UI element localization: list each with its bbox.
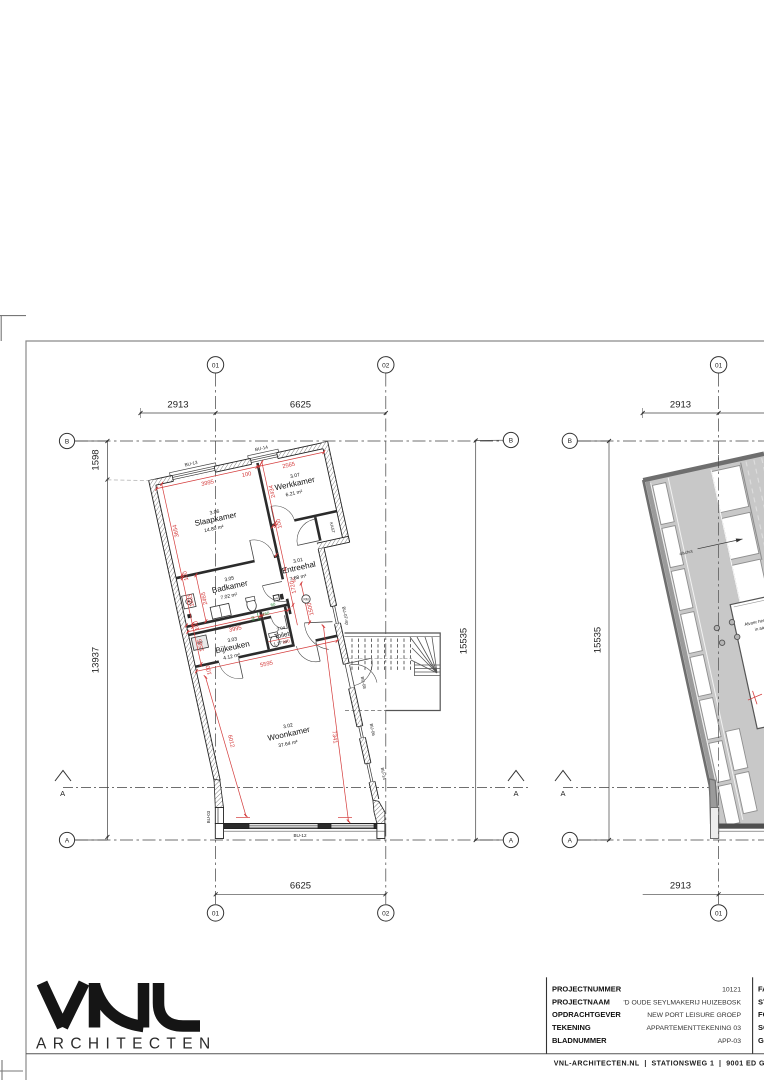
svg-text:2913: 2913 bbox=[167, 400, 188, 411]
svg-text:01: 01 bbox=[715, 362, 723, 369]
svg-text:ARCHITECTEN: ARCHITECTEN bbox=[36, 1036, 217, 1053]
svg-text:SCHAAL: SCHAAL bbox=[758, 1023, 764, 1032]
svg-text:2913: 2913 bbox=[670, 400, 691, 411]
svg-text:01: 01 bbox=[212, 362, 220, 369]
svg-text:GETEKEND: GETEKEND bbox=[758, 1036, 764, 1045]
svg-text:A: A bbox=[568, 837, 573, 844]
svg-text:TEKENING: TEKENING bbox=[552, 1023, 591, 1032]
svg-text:FORMAAT: FORMAAT bbox=[758, 1010, 764, 1019]
svg-text:A: A bbox=[65, 837, 70, 844]
svg-text:10121: 10121 bbox=[722, 987, 741, 994]
svg-text:02: 02 bbox=[382, 910, 390, 917]
svg-text:PROJECTNUMMER: PROJECTNUMMER bbox=[552, 985, 622, 994]
svg-text:APPARTEMENTTEKENING 03: APPARTEMENTTEKENING 03 bbox=[646, 1025, 741, 1032]
svg-text:A: A bbox=[509, 837, 514, 844]
svg-text:01: 01 bbox=[212, 910, 220, 917]
svg-text:FASE: FASE bbox=[758, 985, 764, 994]
svg-text:BU-03: BU-03 bbox=[206, 810, 211, 823]
svg-text:PROJECTNAAM: PROJECTNAAM bbox=[552, 997, 610, 1006]
svg-text:A: A bbox=[513, 789, 518, 798]
svg-text:BLADNUMMER: BLADNUMMER bbox=[552, 1036, 607, 1045]
svg-text:STATUS: STATUS bbox=[758, 997, 764, 1006]
svg-text:15535: 15535 bbox=[459, 628, 470, 654]
svg-text:6625: 6625 bbox=[290, 881, 311, 892]
svg-text:A: A bbox=[560, 789, 565, 798]
svg-text:BU-12: BU-12 bbox=[293, 833, 306, 838]
svg-text:1598: 1598 bbox=[91, 449, 102, 470]
svg-text:A: A bbox=[60, 789, 65, 798]
svg-text:2913: 2913 bbox=[670, 881, 691, 892]
svg-text:'D OUDE SEYLMAKERIJ HUIZEBOSK: 'D OUDE SEYLMAKERIJ HUIZEBOSK bbox=[623, 999, 741, 1006]
svg-text:APP-03: APP-03 bbox=[718, 1038, 742, 1045]
svg-text:6625: 6625 bbox=[290, 400, 311, 411]
svg-text:01: 01 bbox=[715, 910, 723, 917]
svg-text:B: B bbox=[65, 438, 69, 445]
svg-text:B: B bbox=[568, 438, 572, 445]
svg-text:OPDRACHTGEVER: OPDRACHTGEVER bbox=[552, 1010, 621, 1019]
svg-text:B: B bbox=[509, 437, 513, 444]
svg-text:15535: 15535 bbox=[593, 627, 604, 653]
svg-text:VNL-ARCHITECTEN.NL | STATION: VNL-ARCHITECTEN.NL | STATIONSWEG 1 | 900… bbox=[554, 1060, 764, 1067]
svg-text:02: 02 bbox=[382, 362, 390, 369]
svg-text:13937: 13937 bbox=[91, 647, 102, 673]
svg-text:NEW PORT LEISURE GROEP: NEW PORT LEISURE GROEP bbox=[647, 1012, 741, 1019]
svg-text:RM: RM bbox=[304, 598, 309, 602]
